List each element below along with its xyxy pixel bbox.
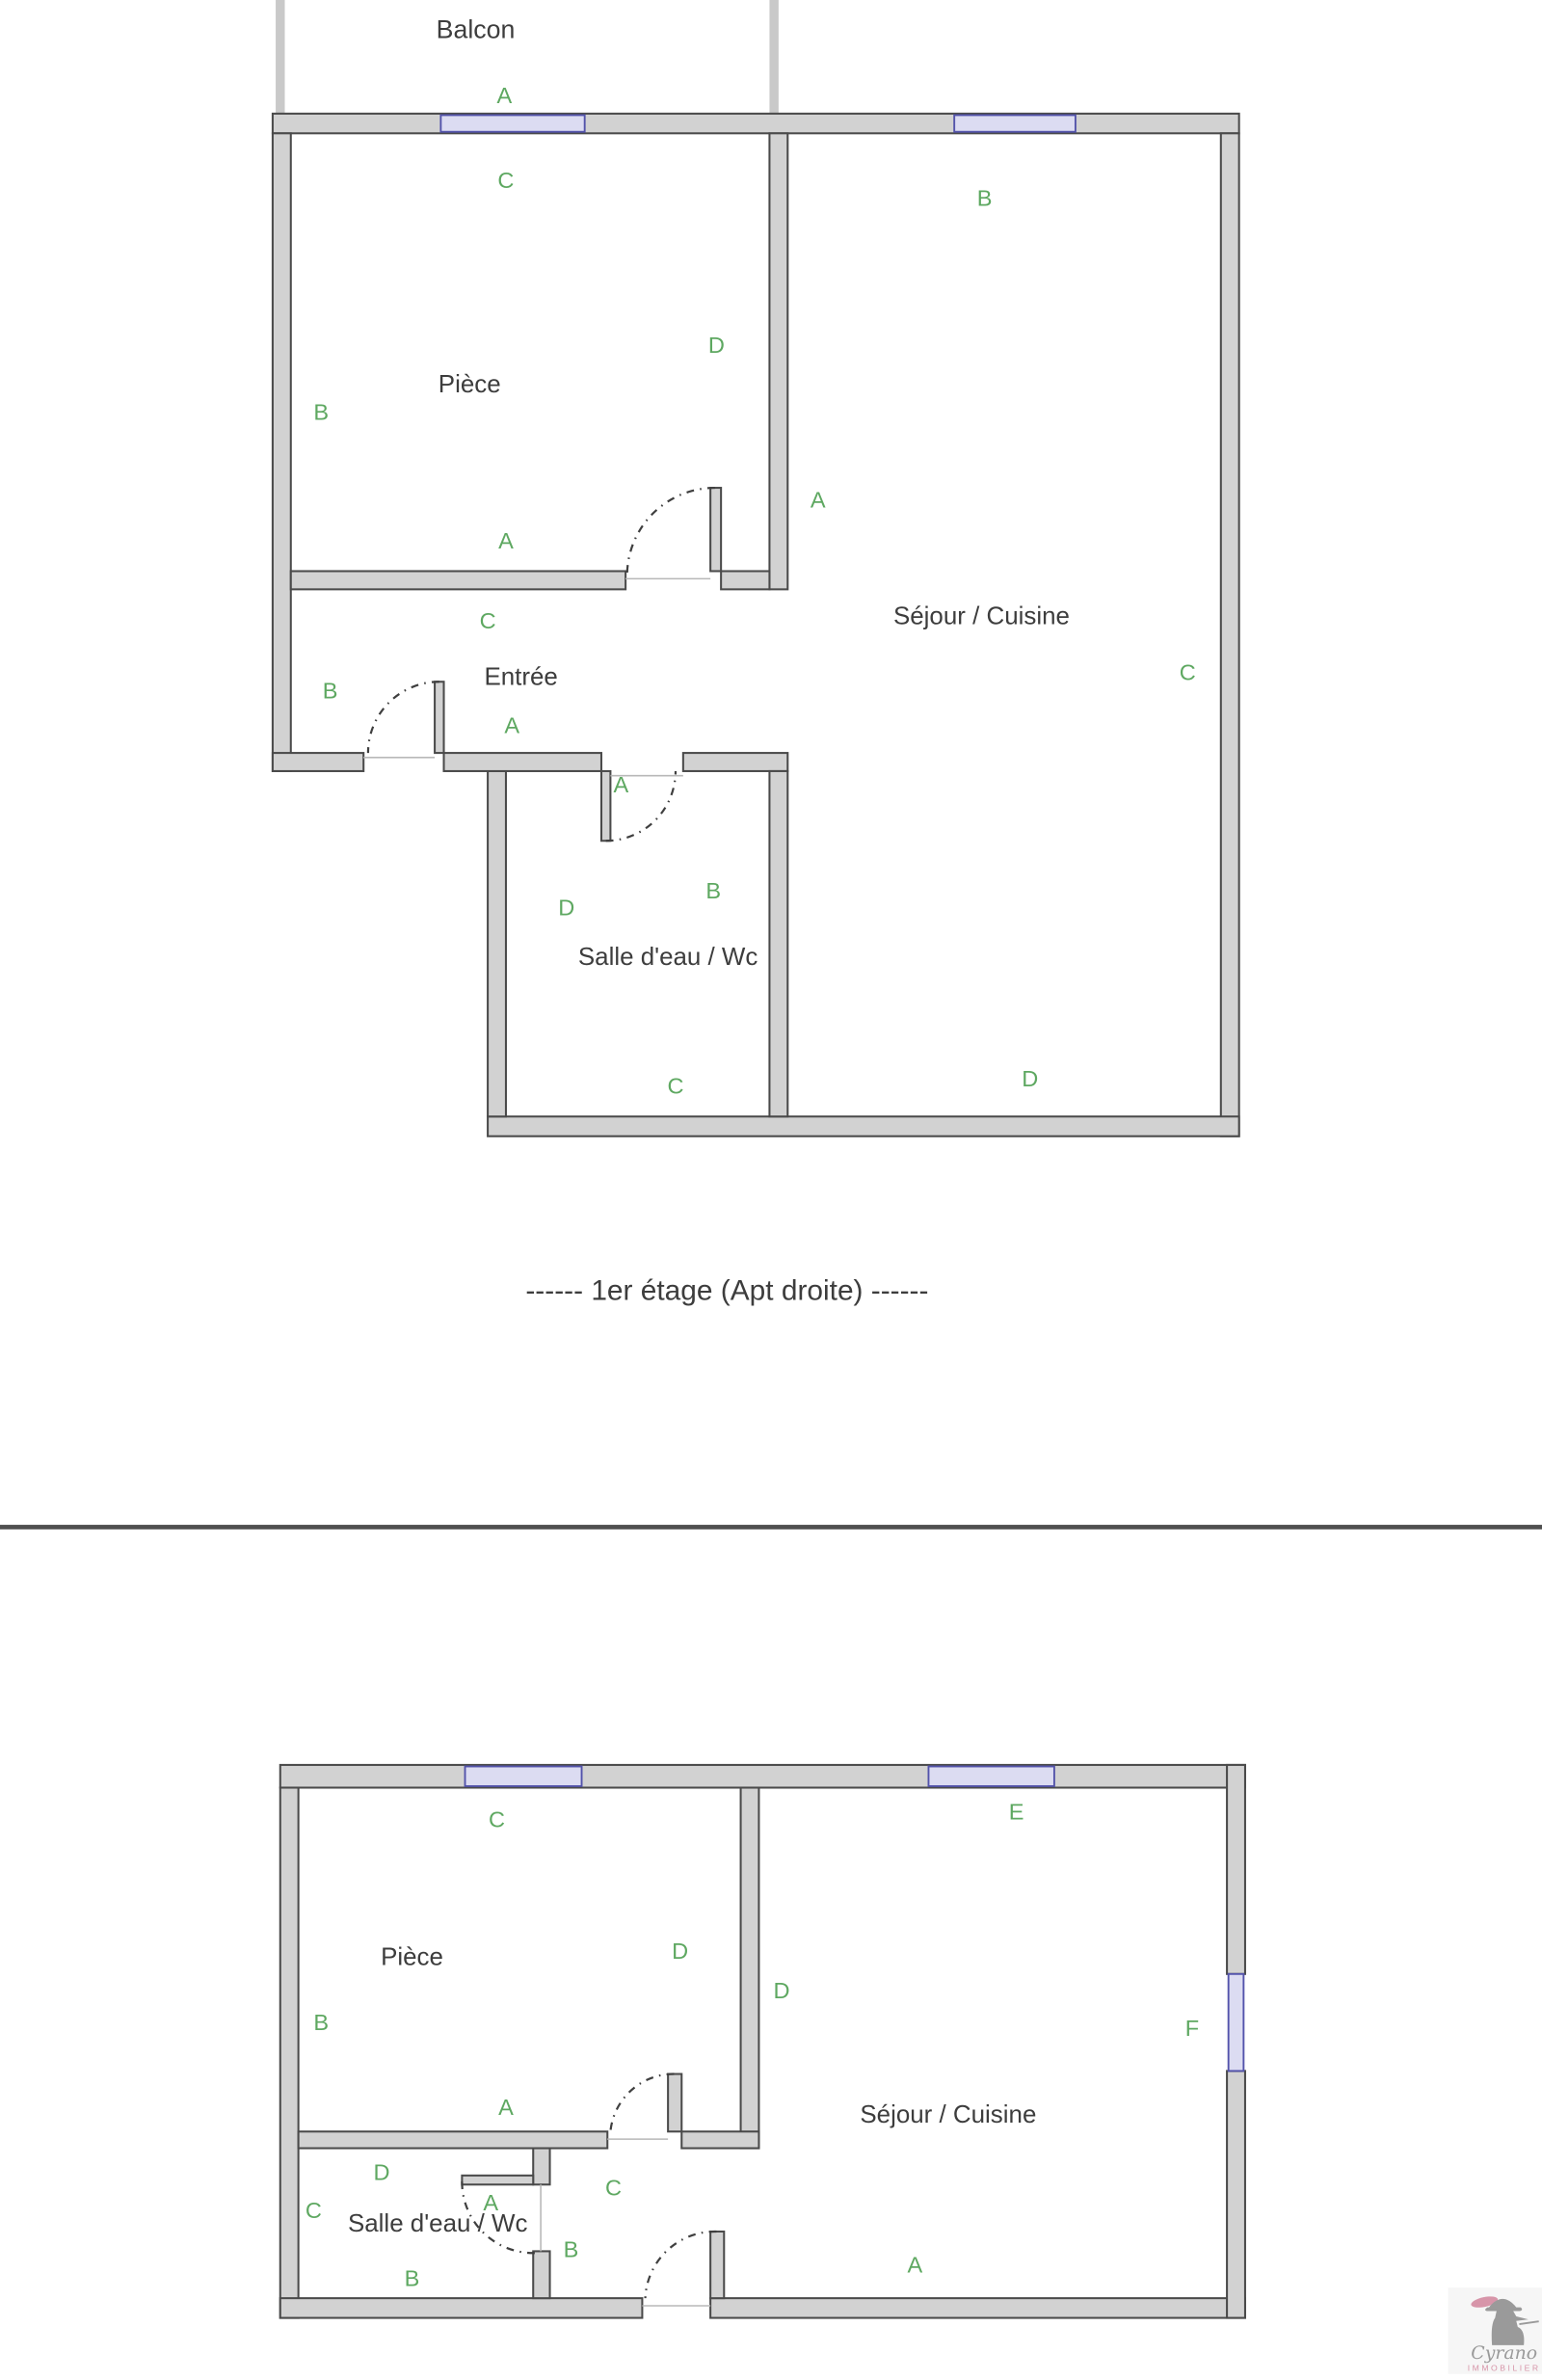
- wall-label: B: [313, 399, 329, 424]
- floor-caption: ------ 1er étage (Apt droite) ------: [525, 1274, 928, 1306]
- wall-label: D: [558, 895, 574, 920]
- door-leaf: [435, 682, 443, 753]
- wall-label: A: [907, 2252, 922, 2277]
- door-swing-arc: [368, 682, 439, 753]
- wall-segment: [299, 2131, 608, 2148]
- wall-segment: [683, 753, 787, 771]
- door-leaf: [601, 771, 610, 841]
- door-leaf: [710, 488, 721, 571]
- wall-segment: [681, 2131, 758, 2148]
- floor-plan-page: Balcon Pièce Séjour / Cuisine Entrée Sal…: [0, 0, 1542, 2380]
- wall-segment: [273, 753, 363, 771]
- door-leaf: [462, 2176, 533, 2184]
- wall-label: C: [497, 168, 514, 193]
- wall-label: D: [773, 1978, 789, 2003]
- wall-segment: [741, 1788, 759, 2149]
- wall-label: A: [497, 83, 513, 108]
- wall-label: B: [564, 2237, 579, 2262]
- wall-segment: [710, 2298, 1245, 2317]
- wall-segment: [769, 133, 787, 589]
- watermark-subtitle: IMMOBILIER: [1468, 2364, 1541, 2373]
- window: [954, 115, 1076, 131]
- wall-label: A: [498, 2095, 514, 2120]
- wall-segment: [1221, 133, 1239, 1136]
- floor-plan-2: Pièce Séjour / Cuisine Salle d'eau / Wc …: [280, 1765, 1245, 2318]
- wall-label: B: [977, 186, 993, 211]
- wall-label: C: [480, 608, 496, 633]
- wall-label: A: [483, 2190, 498, 2215]
- wall-segment: [273, 114, 1239, 133]
- wall-segment: [280, 2298, 643, 2317]
- separator-line: [0, 1525, 1542, 1530]
- wall-label: B: [705, 878, 721, 903]
- wall-label: C: [306, 2198, 322, 2223]
- door-leaf: [668, 2074, 681, 2132]
- room-label-salle-eau: Salle d'eau / Wc: [578, 944, 758, 971]
- wall-segment: [1227, 2071, 1245, 2317]
- room-label-salle-eau: Salle d'eau / Wc: [348, 2210, 528, 2237]
- balcony-label: Balcon: [437, 14, 516, 43]
- wall-segment: [1227, 1765, 1245, 1974]
- room-label-piece: Pièce: [381, 1943, 443, 1970]
- window: [465, 1766, 582, 1785]
- wall-label: A: [504, 713, 519, 738]
- wall-segment: [444, 753, 601, 771]
- door-swing-arc: [610, 2074, 674, 2132]
- floor-plan-1: Balcon Pièce Séjour / Cuisine Entrée Sal…: [273, 0, 1239, 1137]
- floor-plan-canvas: Balcon Pièce Séjour / Cuisine Entrée Sal…: [0, 0, 1542, 2380]
- wall-segment: [721, 571, 769, 589]
- wall-label: C: [667, 1074, 683, 1099]
- wall-label: A: [498, 528, 514, 553]
- wall-segment: [769, 771, 787, 1116]
- wall-segment: [273, 133, 291, 771]
- wall-label: A: [614, 772, 629, 797]
- door-swing-arc: [646, 2232, 717, 2298]
- balcony-rail-left: [276, 0, 284, 115]
- window: [928, 1766, 1053, 1785]
- wall-label: D: [708, 333, 725, 358]
- wall-segment: [533, 2251, 549, 2298]
- room-label-sejour: Séjour / Cuisine: [893, 603, 1070, 630]
- wall-label: B: [405, 2266, 420, 2291]
- wall-segment: [280, 1765, 1245, 1788]
- watermark-brand: Cyrano: [1471, 2343, 1537, 2364]
- door-leaf: [710, 2232, 724, 2298]
- wall-segment: [488, 771, 506, 1116]
- wall-segment: [280, 1788, 299, 2318]
- wall-label: D: [374, 2160, 390, 2185]
- wall-label: C: [489, 1806, 505, 1832]
- agency-watermark: Cyrano IMMOBILIER: [1449, 2287, 1542, 2374]
- wall-label: B: [323, 679, 338, 704]
- wall-label: C: [1180, 660, 1196, 685]
- wall-segment: [291, 571, 625, 589]
- window: [1229, 1974, 1244, 2072]
- room-label-sejour: Séjour / Cuisine: [860, 2101, 1036, 2128]
- balcony-rail-right: [769, 0, 778, 115]
- window: [440, 115, 584, 131]
- wall-label: D: [1022, 1066, 1038, 1091]
- wall-label: D: [672, 1939, 688, 1964]
- wall-label: E: [1009, 1800, 1024, 1825]
- wall-label: C: [605, 2175, 622, 2200]
- room-label-entree: Entrée: [484, 663, 557, 690]
- wall-label: F: [1185, 2016, 1199, 2041]
- wall-segment: [533, 2149, 549, 2185]
- room-label-piece: Pièce: [439, 371, 501, 398]
- wall-label: B: [313, 2010, 329, 2035]
- wall-label: A: [811, 487, 826, 512]
- wall-segment: [488, 1116, 1239, 1136]
- door-swing-arc: [627, 488, 715, 575]
